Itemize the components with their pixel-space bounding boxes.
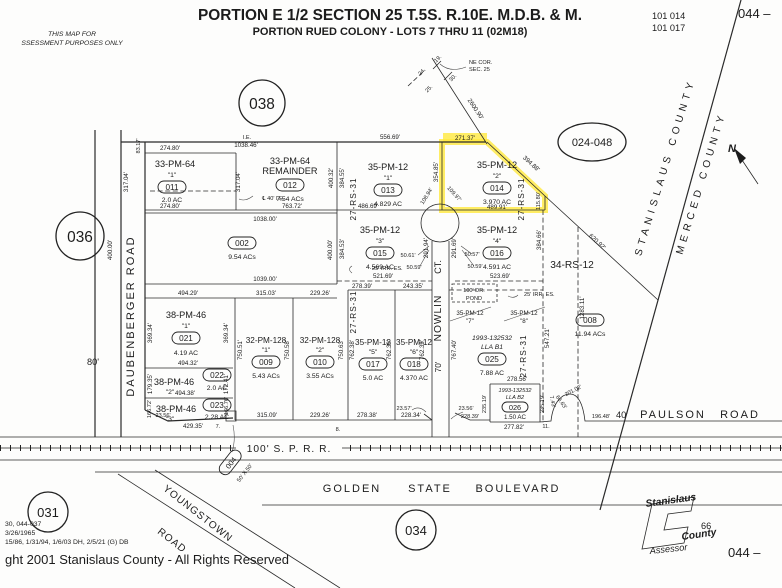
parcel-026-right-dim: 235.19' [540, 395, 546, 413]
parcel-002-right-dim: 400.00' [327, 240, 334, 260]
parcel-023-cut-dim: 23.56' [155, 413, 170, 419]
parcel-014-lot: "2" [493, 173, 502, 180]
ne-corner-line1: NE COR. [469, 60, 493, 66]
golden-label: GOLDEN [323, 483, 381, 495]
state-label: STATE [408, 483, 452, 495]
parcel-013-area: 4.829 AC [374, 201, 402, 208]
parcel-009-tract: 32-PM-128 [246, 336, 287, 345]
parcel-018-right-dim: 762.39' [419, 340, 426, 360]
paulson-label: PAULSON [640, 409, 706, 421]
parcel-013-lot: "1" [384, 175, 393, 182]
parcel-021-top-dim: 494.29' [178, 290, 198, 297]
parcel-018-tract: 35-PM-12 [396, 338, 432, 347]
parcel-009-bottom-dim: 315.09' [257, 412, 277, 419]
parcel-017-lot: "5" [369, 349, 378, 356]
parcel-016-right-dim: 384.66' [536, 230, 543, 250]
parcel-016-lot: "4" [493, 238, 502, 245]
parcel-025-struck-tract-7: 35-PM-12 [456, 310, 484, 317]
parcel-012-tract: 33-PM-64 [270, 156, 310, 166]
parcel-022-lot: "2" [166, 389, 175, 396]
parcel-015-number: 015 [373, 249, 387, 258]
nowlin-width: 70' [434, 361, 443, 372]
parcel-010-right-dim: 750.63' [338, 340, 345, 360]
tract-27rs31-d: 27-RS-31 [519, 334, 528, 377]
parcel-017-bottom-dim: 278.38' [357, 412, 377, 419]
parcel-026-e3-dim: 196.48' [592, 414, 610, 420]
parcel-011-right-dim: 317.04' [235, 172, 242, 192]
parcel-016-arc2: 50.59' [467, 264, 482, 270]
parcel-025-struck-lot-8: "8" [520, 318, 528, 325]
parcel-015-tract: 35-PM-12 [360, 225, 400, 235]
parcel-023-left-dim: 166.72' [147, 400, 153, 418]
parcel-010-top-dim: 229.26' [310, 290, 330, 297]
parcel-025-number: 025 [485, 355, 499, 364]
parcel-013-bottom-dim: 486.69' [358, 203, 378, 210]
parcel-012-top-dim: 1038.46' [234, 142, 258, 149]
parcel-009-area: 5.43 ACs [252, 373, 280, 380]
parcel-017-number: 017 [366, 360, 380, 369]
parcel-026-bottom-dim: 277.82' [504, 424, 524, 431]
parcel-025-lla: LLA B1 [481, 344, 503, 351]
ref-number-2: 101 017 [652, 23, 685, 33]
parcel-023-right-dim: 166.76' [224, 397, 230, 415]
north-label: N [728, 143, 737, 155]
parcel-018-lot: "6" [410, 349, 419, 356]
parcel-016-area: 4.591 AC [483, 264, 511, 271]
map-ref-label-034: 034 [405, 523, 427, 538]
parcel-011-top-dim: 274.80' [160, 145, 180, 152]
parcel-009-number: 009 [259, 358, 273, 367]
daubenberger-width: 80' [87, 357, 99, 367]
parcel-025-cut1: 23.56' [458, 406, 473, 412]
parcel-010-number: 010 [313, 358, 327, 367]
daubenberger-road-label: DAUBENBERGER ROAD [125, 235, 137, 396]
parcel-012-number: 012 [283, 181, 297, 190]
parcel-022-left-dim: 179.35' [147, 374, 154, 394]
footer-note-2: 3/26/1965 [5, 530, 35, 537]
parcel-013-tract: 35-PM-12 [368, 162, 408, 172]
parcel-025-left-dim: 767.40' [451, 340, 458, 360]
map-canvas: 100' S. P. R. R. N THIS MAP FOR SSESSMEN… [0, 0, 782, 588]
parcel-011-lot: "1" [168, 172, 177, 179]
parcel-013-right-dim: 354.85' [433, 162, 440, 182]
ref-number-1: 101 014 [652, 11, 685, 21]
map-ref-label-024-048: 024-048 [572, 137, 612, 149]
parcel-014-number: 014 [490, 184, 504, 193]
parcel-008-area: 11.94 ACs [575, 331, 606, 338]
parcel-018-number: 018 [407, 360, 421, 369]
parcel-025-lla-ref: 1993-132532 [472, 335, 512, 342]
parcel-015-arc2: 50.59' [406, 265, 421, 271]
pond-label-2: POND [466, 296, 482, 302]
parcel-026-lla-ref: 1993-132532 [499, 388, 533, 394]
irr-easement-right: 25' IRR. ES. [524, 292, 555, 298]
parcel-016-arc1: 50.57' [464, 252, 479, 258]
parcel-025-struck-lot-7: "7" [466, 318, 474, 325]
parcel-011-number: 011 [165, 183, 178, 192]
parcel-015-right-dim: 291.94' [423, 238, 430, 258]
parcel-014-right-dim: 115.80' [536, 192, 542, 210]
parcel-014-bottom-dim: 489.91' [487, 204, 507, 211]
parcel-011-bottom-dim: 274.80' [160, 203, 180, 210]
parcel-009-top-dim: 315.03' [256, 290, 276, 297]
parcel-016-left-dim: 291.69' [451, 238, 458, 258]
parcel-023-bottom-dim: 429.35' [183, 423, 203, 430]
tract-27rs31-c: 27-RS-31 [349, 290, 358, 333]
parcel-026-lla: LLA B2 [506, 395, 525, 401]
railroad-label: 100' S. P. R. R. [247, 444, 332, 455]
parcel-012-bottom-dim: 763.72' [282, 203, 302, 210]
parcel-021-bottom-dim: 494.32' [178, 360, 198, 367]
parcel-013-number: 013 [381, 186, 395, 195]
parcel-011-tract: 33-PM-64 [155, 159, 195, 169]
parcel-010-tract: 32-PM-128 [300, 336, 341, 345]
map-subtitle: PORTION RUED COLONY - LOTS 7 THRU 11 (02… [253, 26, 528, 38]
irr-easement-left: 25' IRR. ES. [372, 266, 403, 272]
parcel-002-top-dim: 1038.00' [253, 216, 277, 223]
parcel-014-tract: 35-PM-12 [477, 160, 517, 170]
parcel-009-lot: "1" [262, 347, 271, 354]
parcel-018-area: 4.370 AC [400, 375, 428, 382]
parcel-002-bottom-dim: 1039.00' [253, 276, 277, 283]
parcel-015-left-dim: 384.53' [339, 239, 346, 259]
centerline-ie-note: ℄ 40' I.E. [261, 196, 285, 202]
tract-27rs31-a: 27-RS-31 [349, 177, 358, 220]
map-ref-label-031: 031 [37, 505, 59, 520]
parcel-018-bottom-dim: 228.34' [401, 412, 421, 419]
parcel-026-area: 1.50 AC [504, 414, 527, 421]
parcel-021-right-dim: 369.34' [223, 323, 230, 343]
parcel-022-bottom-dim: 494.38' [175, 390, 195, 397]
parcel-015-arc1: 50.61' [400, 253, 415, 259]
lot-tick-7: 7. [216, 424, 221, 430]
paulson-road-label: ROAD [720, 409, 760, 421]
lot-tick-11: 11. [542, 424, 550, 430]
parcel-018-top-dim: 243.35' [403, 283, 423, 290]
parcel-015-bottom-dim: 521.69' [373, 273, 393, 280]
pond-label-1: 100' DR. [463, 288, 485, 294]
parcel-026-number: 026 [509, 403, 521, 412]
parcel-022-tract: 38-PM-46 [154, 377, 194, 387]
parcel-009-right-dim: 750.58' [284, 340, 291, 360]
map-title: PORTION E 1/2 SECTION 25 T.5S. R.10E. M.… [198, 7, 582, 24]
parcel-015-lot: "3" [376, 238, 385, 245]
parcel-017-right-dim: 762.39' [386, 340, 393, 360]
dim-1283: 1283.11' [579, 296, 586, 319]
boulevard-label: BOULEVARD [475, 483, 560, 495]
footer-note-3: 15/86, 1/31/94, 1/6/03 DH, 2/5/21 (G) DB [5, 539, 129, 546]
parcel-021-left-dim: 369.34' [147, 323, 154, 343]
tract-34rs12: 34-RS-12 [550, 260, 594, 271]
parcel-025-area: 7.88 AC [480, 370, 504, 377]
map-ref-label-038: 038 [249, 96, 275, 113]
parcel-017-top-dim: 278.39' [352, 283, 372, 290]
assessor-map-page: 100' S. P. R. R. N THIS MAP FOR SSESSMEN… [0, 0, 782, 588]
parcel-016-bottom-dim: 523.69' [490, 273, 510, 280]
parcel-012-right-dim: 400.32' [328, 168, 335, 188]
parcel-016-tract: 35-PM-12 [477, 225, 517, 235]
footer-note-1: 30, 044-037 [5, 521, 42, 528]
page-ref-top-right: 044 – [738, 6, 771, 21]
parcel-011-left-dim: 317.04' [123, 172, 130, 192]
disclaimer-line1: THIS MAP FOR [48, 31, 96, 38]
parcel-022-right-dim: 172.41' [223, 374, 230, 394]
parcel-012-tract2: REMAINDER [262, 166, 317, 176]
map-ref-label-036: 036 [67, 229, 93, 246]
parcel-002-number: 002 [235, 239, 249, 248]
disclaimer-line2: SSESSMENT PURPOSES ONLY [21, 40, 123, 47]
parcel-026-left-dim: 235.19' [482, 395, 488, 413]
dim-83: 83.17' [136, 138, 142, 153]
parcel-010-lot: "2" [316, 347, 325, 354]
parcel-014-top-dim: 271.37' [455, 135, 475, 142]
nowlin-label: NOWLIN [433, 295, 444, 342]
parcel-016-number: 016 [490, 249, 504, 258]
parcel-021-tract: 38-PM-46 [166, 310, 206, 320]
parcel-025-right-dim: 547.21' [544, 328, 551, 348]
lot-tick-8: 8. [336, 427, 341, 433]
parcel-025-bottom-dim: 278.56' [507, 376, 527, 383]
paulson-width: 40' [616, 410, 628, 420]
parcel-010-area: 3.55 ACs [306, 373, 334, 380]
parcel-009-left-dim: 750.51' [237, 340, 244, 360]
parcel-021-number: 021 [179, 334, 193, 343]
parcel-013-left-dim: 384.55' [339, 168, 346, 188]
nowlin-ct-label: CT. [433, 260, 443, 274]
parcel-002-area: 9.54 ACs [228, 254, 256, 261]
parcel-018-cut-dim: 23.57' [396, 406, 411, 412]
parcel-025-struck-tract-8: 35-PM-12 [510, 310, 538, 317]
parcel-021-lot: "1" [182, 323, 191, 330]
parcel-025-cut2: 228.39' [461, 414, 479, 420]
copyright-text: ght 2001 Stanislaus County - All Rights … [5, 552, 289, 567]
parcel-017-area: 5.0 AC [363, 375, 383, 382]
tract-27rs31-b: 27-RS-31 [517, 177, 526, 220]
ne-corner-line2: SEC. 25 [469, 67, 490, 73]
parcel-010-bottom-dim: 229.26' [310, 412, 330, 419]
parcel-013-top-dim: 556.69' [380, 134, 400, 141]
parcel-023-number: 023 [210, 401, 224, 410]
parcel-021-area: 4.19 AC [174, 350, 198, 357]
parcel-002-left-dim: 400.00' [107, 240, 114, 260]
page-ref-bottom-right: 044 – [728, 545, 761, 560]
ie-note: I.E. [243, 135, 252, 141]
